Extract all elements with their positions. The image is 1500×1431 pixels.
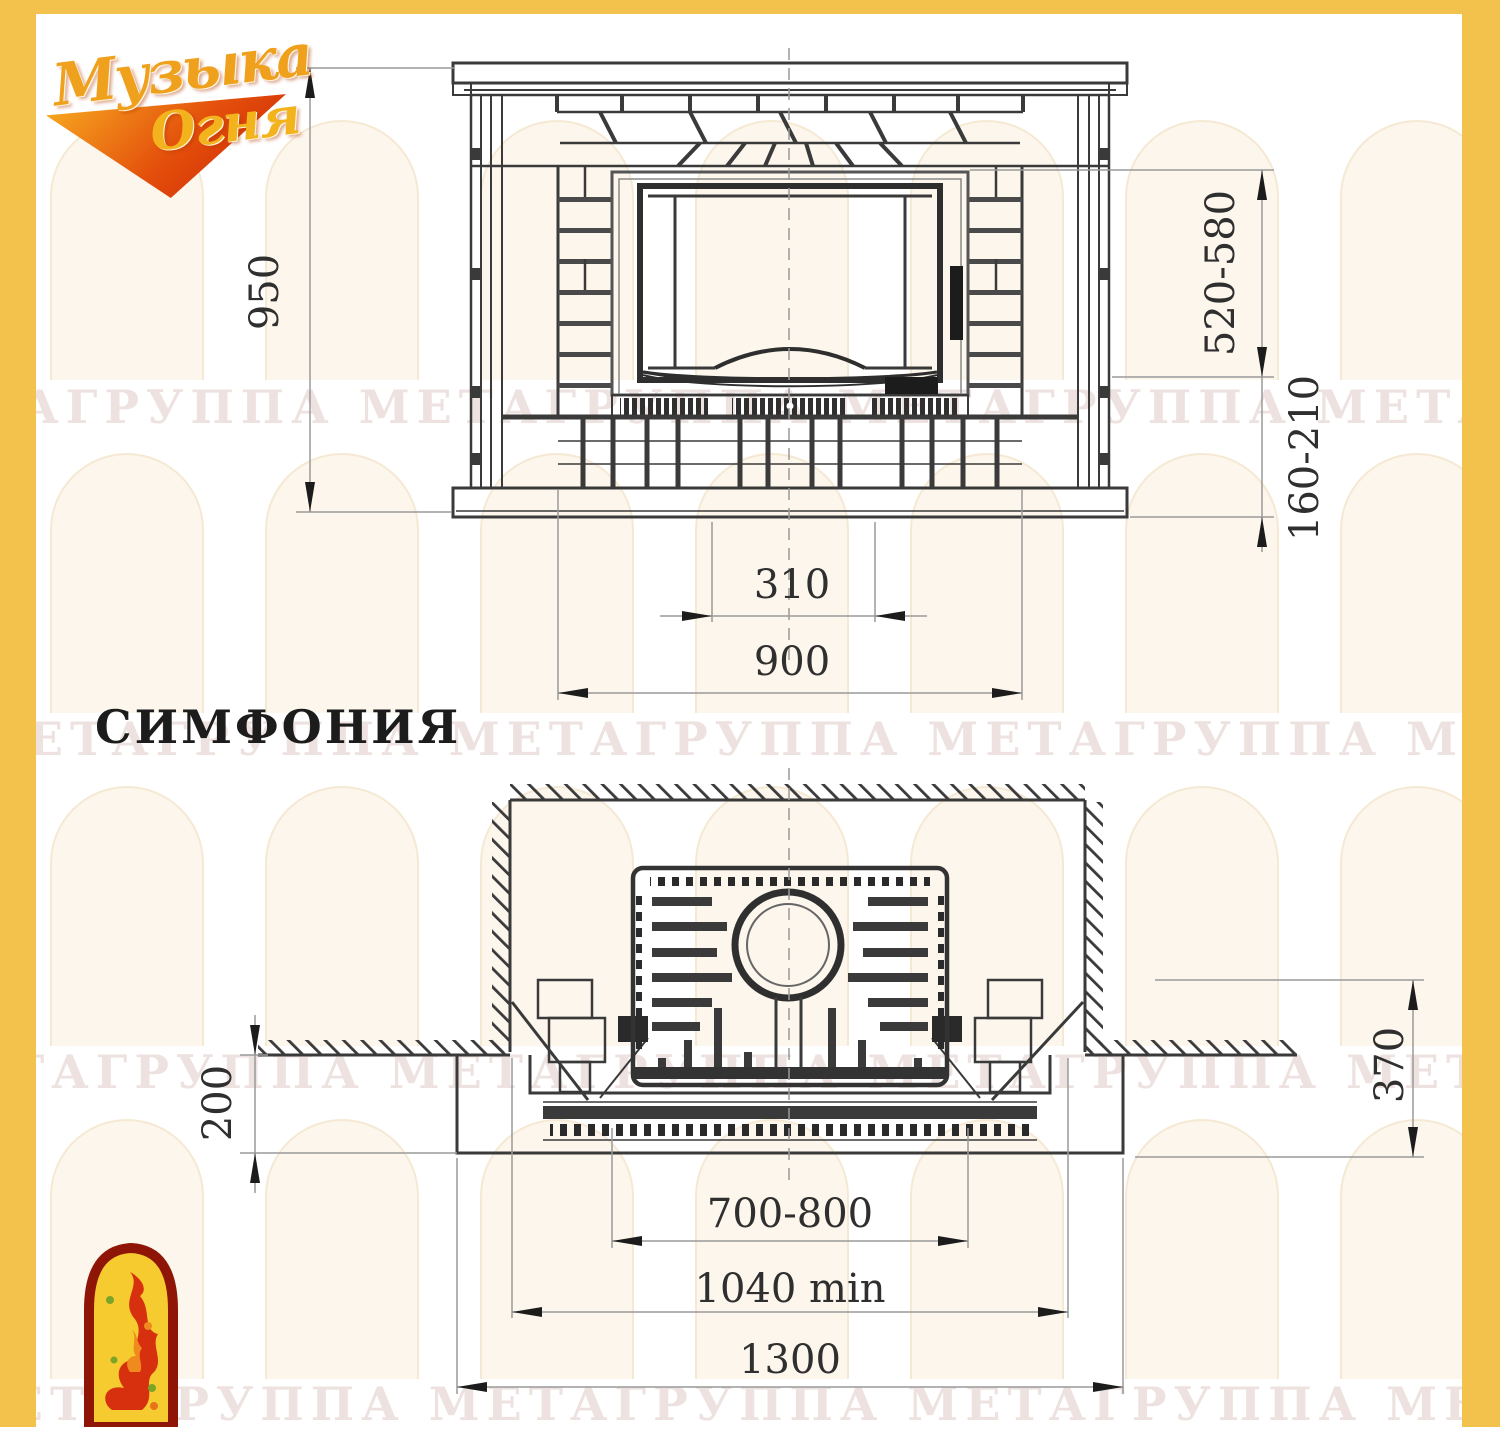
base-masonry bbox=[502, 417, 1078, 488]
threshold bbox=[543, 1102, 1037, 1140]
vent-grille bbox=[620, 398, 708, 415]
front-elevation-group bbox=[453, 63, 1127, 517]
mascot-emblem bbox=[80, 1238, 182, 1427]
brand-logo: Музыка Огня bbox=[38, 18, 318, 188]
dim-label-hearth-width: 1300 bbox=[739, 1337, 841, 1383]
dim-label-side-depth: 370 bbox=[1367, 1027, 1413, 1103]
niche-walls bbox=[510, 800, 1085, 1052]
insert-plan bbox=[633, 868, 947, 1085]
door-handle bbox=[950, 266, 963, 340]
dim-label-hearth-front-depth: 200 bbox=[195, 1065, 241, 1141]
frame-border-right bbox=[1462, 0, 1500, 1427]
dim-label-niche-width-min: 1040 min bbox=[695, 1266, 886, 1312]
frieze-bricks bbox=[471, 95, 1109, 166]
mantel-shelf bbox=[453, 63, 1127, 83]
log-retainer-arc bbox=[715, 349, 865, 368]
flue-outlet-circle bbox=[735, 892, 841, 998]
door-glass bbox=[648, 196, 932, 368]
dim-label-portal-opening-width: 700-800 bbox=[707, 1191, 873, 1237]
base-plinth bbox=[453, 488, 1127, 517]
frame-border-left bbox=[0, 0, 36, 1427]
air-control bbox=[885, 377, 938, 394]
frame-border-top bbox=[0, 0, 1500, 14]
model-title: СИМФОНИЯ bbox=[95, 700, 461, 754]
plan-view-group bbox=[258, 784, 1297, 1153]
insert-ribs bbox=[652, 897, 928, 1072]
dim-label-overall-height: 950 bbox=[242, 254, 288, 330]
dim-label-ash-vent-width: 310 bbox=[754, 562, 830, 608]
dim-label-hearth-height: 160-210 bbox=[1282, 375, 1328, 541]
vent-grille bbox=[872, 398, 960, 415]
dim-label-opening-height: 520-580 bbox=[1198, 190, 1244, 356]
dim-label-base-width: 900 bbox=[754, 639, 830, 685]
firebox-insert bbox=[612, 172, 968, 417]
